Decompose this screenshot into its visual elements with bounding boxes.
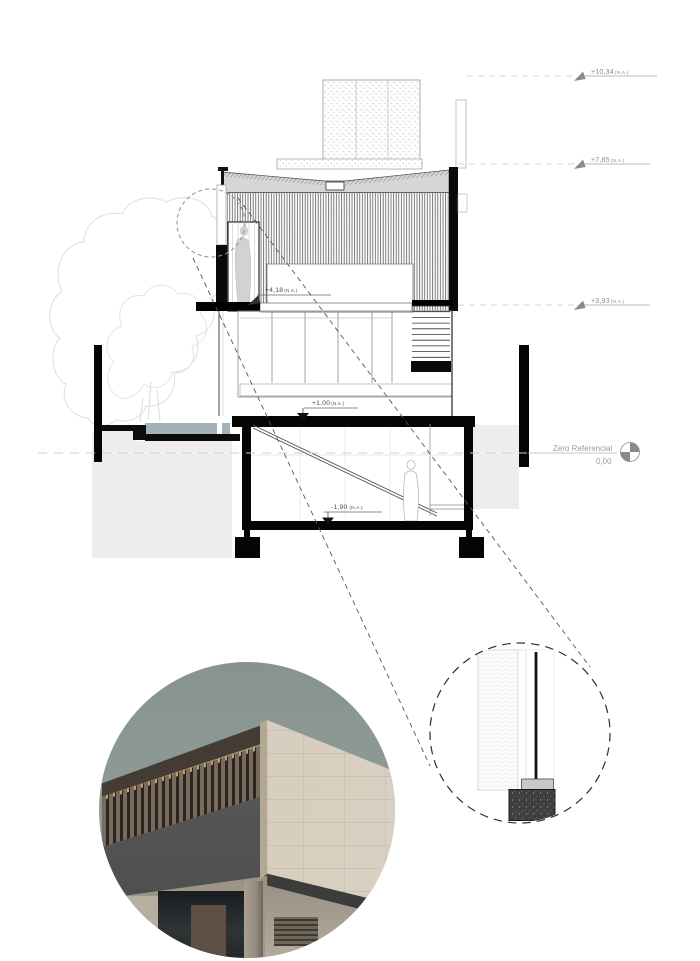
trees [50,198,225,426]
elevation-markers: +10,34(N.A.) +7,85(N.A.) +3,93(N.A.) [458,69,657,310]
flue [456,100,466,168]
stair-landing [411,361,451,372]
ground-slab [232,416,475,427]
pool-water [145,423,217,434]
sill-bench [240,384,452,396]
roof-volume [277,80,466,169]
roof-gutter [326,182,344,190]
detail-base-plate [522,779,554,790]
site-wall-left [94,345,102,462]
level-10-34: +10,34(N.A.) [591,69,629,76]
footing-left [235,537,260,558]
level-minus-1-90: -1,90(N.A.) [331,504,363,511]
detail-steel-bar [535,652,538,783]
stair [412,306,450,357]
level-7-85: +7,85(N.A.) [591,157,625,164]
site-wall-right [519,345,529,467]
level-4-18: +4,18(N.A.) [265,287,298,294]
datum-label: Zero Referencial [553,444,612,453]
level-1-00: +1,00(N.A.) [312,400,345,407]
footing-right [459,537,484,558]
basement [235,423,484,558]
datum-value: 0,00 [596,457,612,466]
section-drawing: Zero Referencial 0,00 +10,34(N.A.) +7,85… [0,0,700,961]
wall-right-upper [449,167,458,311]
level-3-93: +3,93(N.A.) [591,298,625,305]
detail-concrete-block [509,790,555,821]
middle-floor [219,306,452,416]
roof [217,167,458,193]
architectural-sheet: Zero Referencial 0,00 +10,34(N.A.) +7,85… [0,0,700,961]
